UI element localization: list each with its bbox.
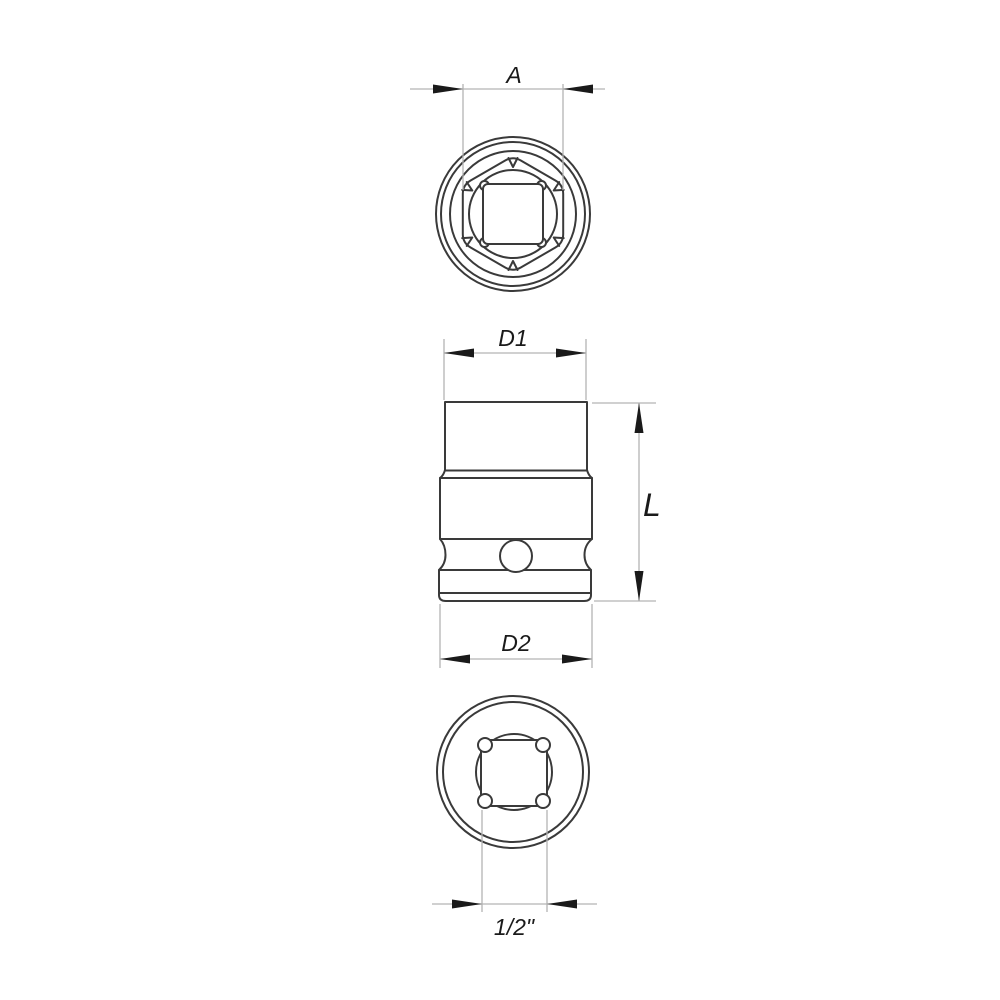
dim-d1: D1 — [444, 325, 586, 400]
dim-l-label: L — [643, 487, 661, 523]
arrowhead-left-icon — [563, 85, 593, 94]
arrowhead-up-icon — [635, 403, 644, 433]
bottom-view — [437, 696, 589, 848]
socket-drawing: A D1 L — [0, 0, 1000, 1000]
arrowhead-left-icon — [444, 349, 474, 358]
hex-corner-notch — [509, 261, 518, 270]
pin-hole — [500, 540, 532, 572]
corner-relief-bump — [478, 738, 492, 752]
square-drive-top — [483, 184, 543, 244]
arrowhead-right-icon — [562, 655, 592, 664]
dim-drive-label: 1/2" — [494, 914, 536, 940]
dim-d1-label: D1 — [498, 325, 527, 351]
dim-drive: 1/2" — [432, 810, 597, 940]
arrowhead-down-icon — [635, 571, 644, 601]
arrowhead-left-icon — [440, 655, 470, 664]
top-view — [436, 137, 590, 291]
arrowhead-right-icon — [452, 900, 482, 909]
hex-corner-notch — [509, 158, 518, 167]
side-view — [439, 402, 592, 601]
dim-l: L — [592, 403, 661, 601]
corner-relief-bump — [536, 738, 550, 752]
arrowhead-right-icon — [556, 349, 586, 358]
corner-relief-bump — [536, 794, 550, 808]
technical-drawing-page: A D1 L — [0, 0, 1000, 1000]
arrowhead-left-icon — [547, 900, 577, 909]
corner-relief-bump — [478, 794, 492, 808]
dim-d2: D2 — [440, 604, 592, 668]
dim-a-label: A — [504, 62, 521, 88]
arrowhead-right-icon — [433, 85, 463, 94]
dim-d2-label: D2 — [501, 630, 531, 656]
